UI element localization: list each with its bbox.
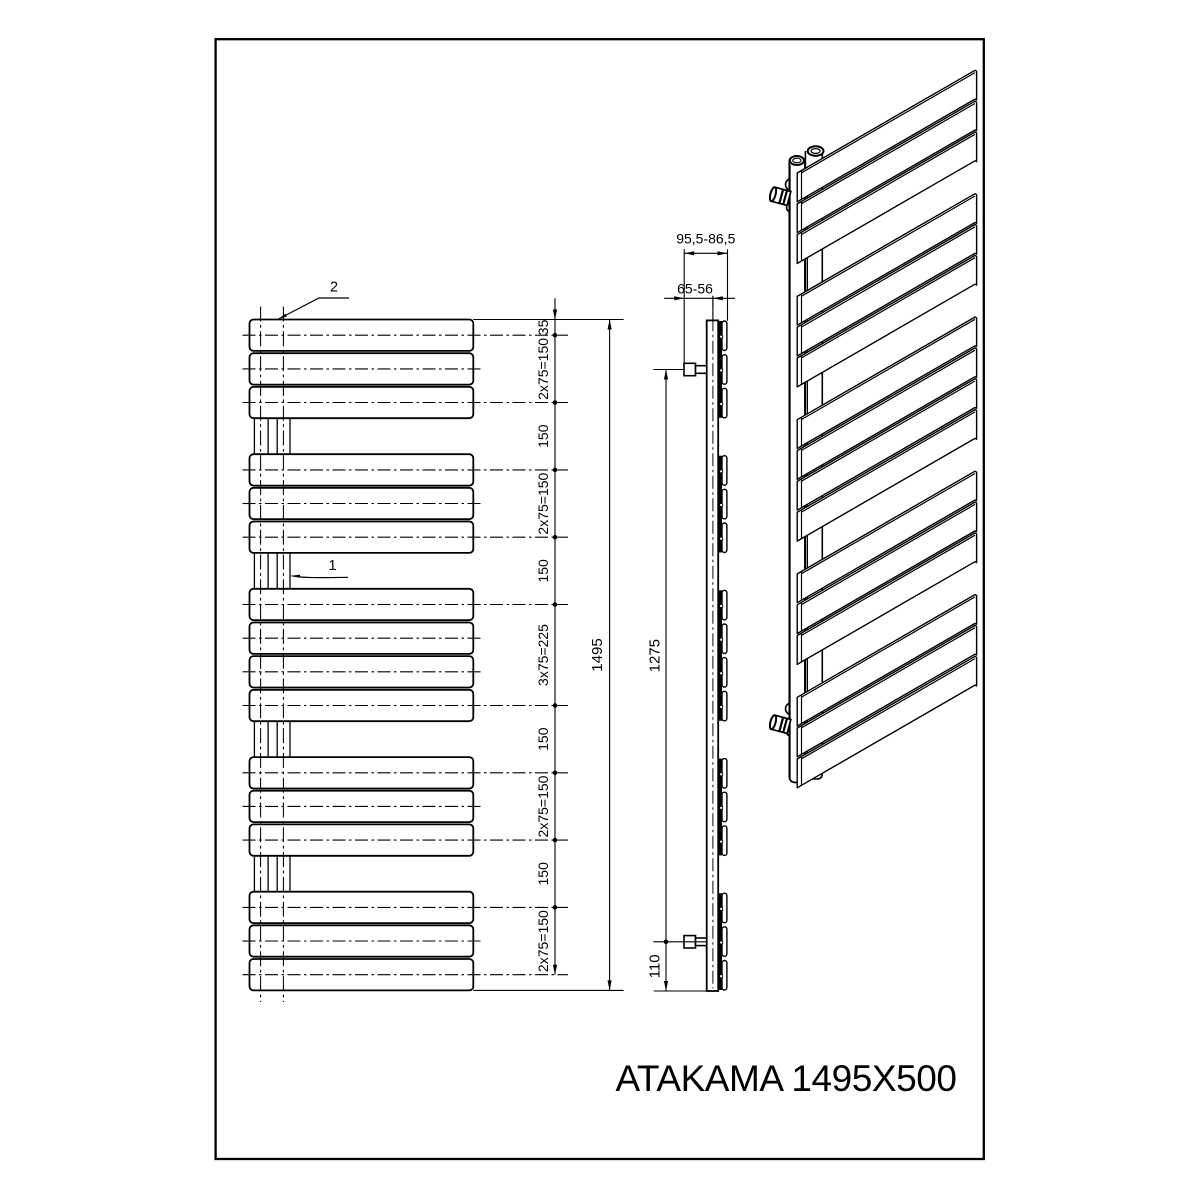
svg-text:2x75=150: 2x75=150 [535, 910, 551, 972]
svg-text:150: 150 [535, 862, 551, 886]
svg-text:95,5-86,5: 95,5-86,5 [676, 231, 735, 247]
svg-text:2x75=150: 2x75=150 [535, 338, 551, 400]
svg-text:1275: 1275 [647, 639, 664, 672]
svg-text:35: 35 [535, 319, 551, 335]
svg-text:110: 110 [647, 954, 664, 978]
svg-text:1495: 1495 [589, 638, 606, 671]
svg-text:65-56: 65-56 [677, 281, 713, 297]
svg-text:150: 150 [535, 727, 551, 751]
svg-text:2x75=150: 2x75=150 [535, 775, 551, 837]
svg-text:ATAKAMA 1495X500: ATAKAMA 1495X500 [615, 1058, 956, 1099]
svg-text:1: 1 [328, 558, 336, 574]
svg-text:3x75=225: 3x75=225 [535, 624, 551, 686]
svg-text:2x75=150: 2x75=150 [535, 472, 551, 534]
svg-text:150: 150 [535, 424, 551, 448]
svg-text:2: 2 [330, 280, 338, 296]
svg-text:150: 150 [535, 559, 551, 583]
